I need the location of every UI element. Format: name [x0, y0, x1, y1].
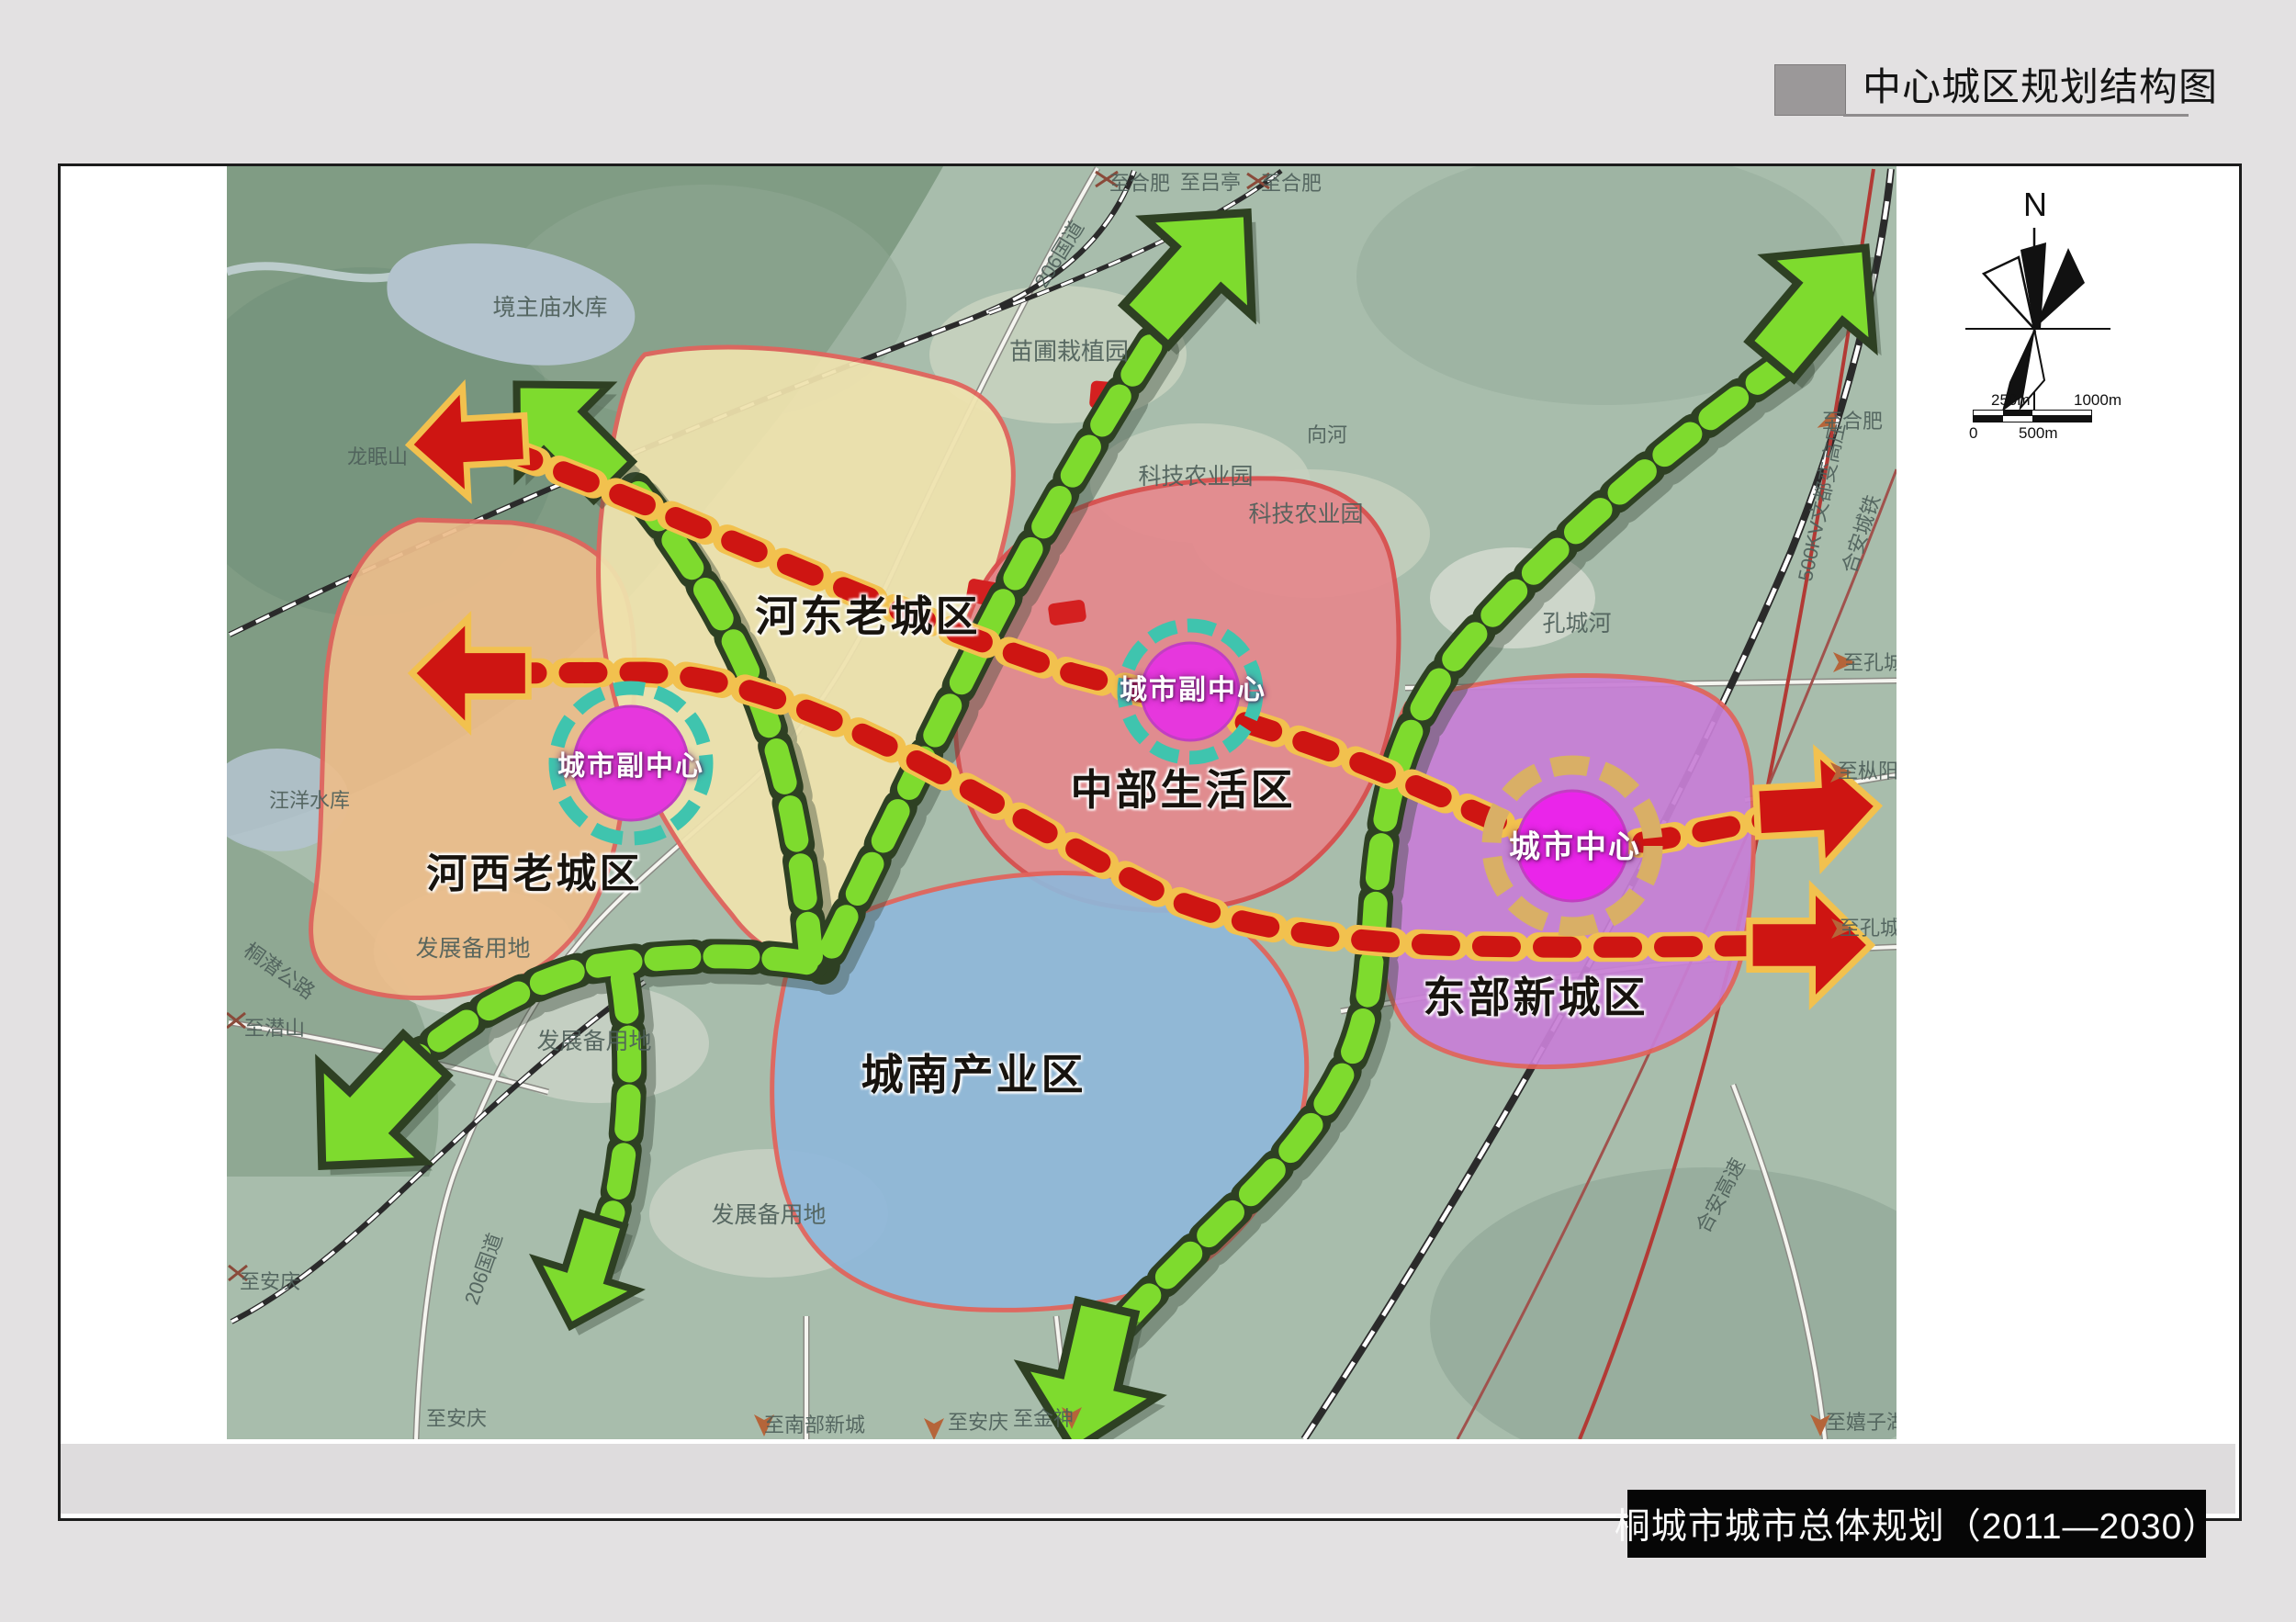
page-title: 中心城区规划结构图 [1863, 61, 2193, 114]
scale-250m-label: 250m [1991, 391, 2031, 410]
title-marker-box [1774, 64, 1846, 116]
map-label: 至安庆 [240, 1266, 300, 1295]
city-subcenter-west-label: 城市副中心 [557, 743, 704, 783]
map-label: 至合肥 [1261, 167, 1322, 197]
map-label: 至安庆 [426, 1402, 487, 1432]
map-label: 至吕亭 [1180, 166, 1241, 196]
map-label: 至金神 [1013, 1402, 1074, 1432]
scale-0-label: 0 [1969, 424, 1977, 443]
map-label: 孔城河 [1542, 605, 1611, 638]
city-subcenter-mid-label: 城市副中心 [1120, 667, 1266, 707]
map-label: 向河 [1307, 419, 1347, 448]
footer-title-box: 桐城市城市总体规划（2011—2030） [1627, 1490, 2206, 1558]
scale-500m-label: 500m [2019, 424, 2058, 443]
title-underline [1843, 114, 2189, 117]
zone-label-zhongbu: 中部生活区 [1071, 757, 1296, 817]
scale-1000m-label: 1000m [2074, 391, 2122, 410]
map-label: 至枞阳 [1838, 755, 1896, 784]
footer-title: 桐城市城市总体规划（2011—2030） [1615, 1498, 2220, 1549]
scale-bar [1973, 410, 2092, 422]
map-label: 科技农业园 [1138, 458, 1253, 491]
planning-sheet: 中心城区规划结构图 [0, 0, 2296, 1622]
map-label: 至嬉子湖 [1826, 1406, 1896, 1436]
map-label: 龙眠山 [347, 441, 408, 470]
zone-label-hedong: 河东老城区 [756, 583, 981, 644]
map-label: 汪洋水库 [269, 784, 350, 814]
city-center-label: 城市中心 [1509, 822, 1641, 867]
zone-label-chengnan: 城南产业区 [861, 1042, 1086, 1102]
map-label: 至合肥 [1822, 405, 1883, 434]
map-label: 科技农业园 [1248, 496, 1363, 529]
map-label: 至南部新城 [764, 1409, 865, 1438]
map-label: 苗圃栽植园 [1009, 333, 1129, 367]
map-label: 至安庆 [948, 1406, 1008, 1436]
map-label: 至潜山 [244, 1012, 305, 1042]
map-label: 至孔城 [1843, 647, 1896, 676]
map-label: 至合肥 [1109, 167, 1170, 197]
map-label: 发展备用地 [711, 1197, 826, 1230]
zone-label-hexi: 河西老城区 [427, 840, 643, 899]
map-label: 发展备用地 [415, 930, 530, 963]
planning-map[interactable]: 至合肥 至吕亭 至合肥 206国道 苗圃栽植园 向河 科技农业园 科技农业园 境… [227, 166, 1896, 1439]
zone-label-dongbu: 东部新城区 [1424, 964, 1649, 1025]
map-label: 发展备用地 [536, 1023, 651, 1056]
map-label: 至孔城 [1840, 912, 1896, 941]
map-label: 境主庙水库 [492, 289, 607, 322]
